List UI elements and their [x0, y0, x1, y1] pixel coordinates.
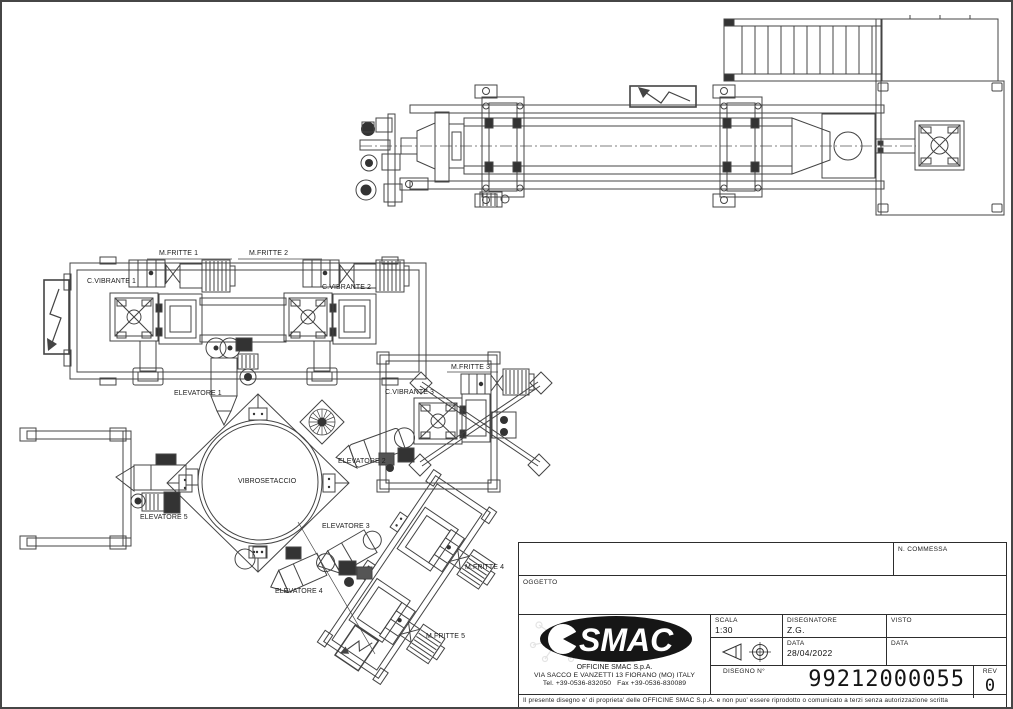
scala-label: SCALA [715, 617, 778, 624]
support-arms [409, 372, 552, 476]
data-label: DATA [787, 640, 882, 647]
disegnatore-value: Z.G. [787, 625, 882, 635]
hazard-symbol-icon [44, 280, 69, 354]
visto-cell: VISTO [887, 615, 1006, 637]
smac-logo: SMAC [519, 615, 709, 663]
elevator-3 [314, 524, 387, 587]
scala-cell: SCALA 1:30 [711, 615, 783, 637]
company-name: OFFICINE SMAC S.p.A. [519, 664, 710, 671]
projection-symbol-icon [716, 640, 778, 664]
elevator-2 [334, 423, 418, 473]
label-elevatore-2: ELEVATORE 2 [338, 458, 386, 465]
rev-value: 0 [978, 676, 1002, 696]
third-mill-unit [377, 352, 552, 492]
commessa-cell: N. COMMESSA [893, 543, 1006, 575]
company-address: VIA SACCO E VANZETTI 13 FIORANO (MO) ITA… [519, 672, 710, 679]
cad-drawing-page: M.FRITTE 1 M.FRITTE 2 M.FRITTE 3 M.FRITT… [0, 0, 1013, 709]
drive-unit [915, 121, 964, 170]
label-c-vibrante-3: C.VIBRANTE 3 [385, 389, 434, 396]
tilted-mill-unit [313, 467, 524, 703]
company-logo-cell: SMAC OFFICINE SMAC S.p.A. VIA SACCO E VA… [519, 615, 711, 694]
disegnatore-cell: DISEGNATORE Z.G. [783, 615, 887, 637]
ball-mill-top-view [356, 15, 1004, 215]
oggetto-label: OGGETTO [523, 579, 1002, 586]
smac-logo-text: SMAC [579, 622, 674, 658]
rev-cell: REV 0 [974, 666, 1006, 698]
label-m-fritte-3: M.FRITTE 3 [451, 364, 490, 371]
data-value: 28/04/2022 [787, 648, 882, 658]
data2-cell: DATA [887, 638, 1006, 665]
mill-2 [284, 260, 409, 385]
staircase [724, 15, 998, 81]
drawing-number: 99212000055 [808, 667, 965, 692]
label-vibrosetaccio: VIBROSETACCIO [238, 478, 296, 485]
label-m-fritte-4: M.FRITTE 4 [465, 564, 504, 571]
label-elevatore-5: ELEVATORE 5 [140, 514, 188, 521]
elevator-1 [206, 338, 258, 425]
rev-label: REV [978, 668, 1002, 675]
data-cell: DATA 28/04/2022 [783, 638, 887, 665]
oggetto-cell: OGGETTO [519, 576, 1006, 615]
label-c-vibrante-2: C.VIBRANTE 2 [322, 284, 371, 291]
hazard-symbol-icon [630, 86, 696, 107]
company-phone: Tel. +39-0536-832050 Fax +39-0536-830089 [519, 680, 710, 687]
label-m-fritte-5: M.FRITTE 5 [426, 633, 465, 640]
label-elevatore-1: ELEVATORE 1 [174, 390, 222, 397]
label-elevatore-3: ELEVATORE 3 [322, 523, 370, 530]
data2-label: DATA [891, 640, 1002, 647]
projection-cell [711, 638, 783, 665]
platform [876, 19, 1004, 215]
disegnatore-label: DISEGNATORE [787, 617, 882, 624]
title-block: N. COMMESSA OGGETTO SMAC OFFICINE SMAC S… [518, 542, 1007, 695]
scala-value: 1:30 [715, 625, 778, 635]
disegno-cell: DISEGNO N° 99212000055 [711, 666, 974, 698]
label-m-fritte-1: M.FRITTE 1 [159, 250, 198, 257]
elevator-5-unit [20, 428, 198, 549]
label-c-vibrante-1: C.VIBRANTE 1 [87, 278, 136, 285]
label-m-fritte-2: M.FRITTE 2 [249, 250, 288, 257]
commessa-label: N. COMMESSA [898, 546, 1002, 553]
visto-label: VISTO [891, 617, 1002, 624]
disclaimer: Il presente disegno e' di proprieta' del… [518, 695, 1007, 708]
commessa-row: N. COMMESSA [519, 543, 1006, 576]
label-elevatore-4: ELEVATORE 4 [275, 588, 323, 595]
fan-icon [300, 400, 344, 444]
